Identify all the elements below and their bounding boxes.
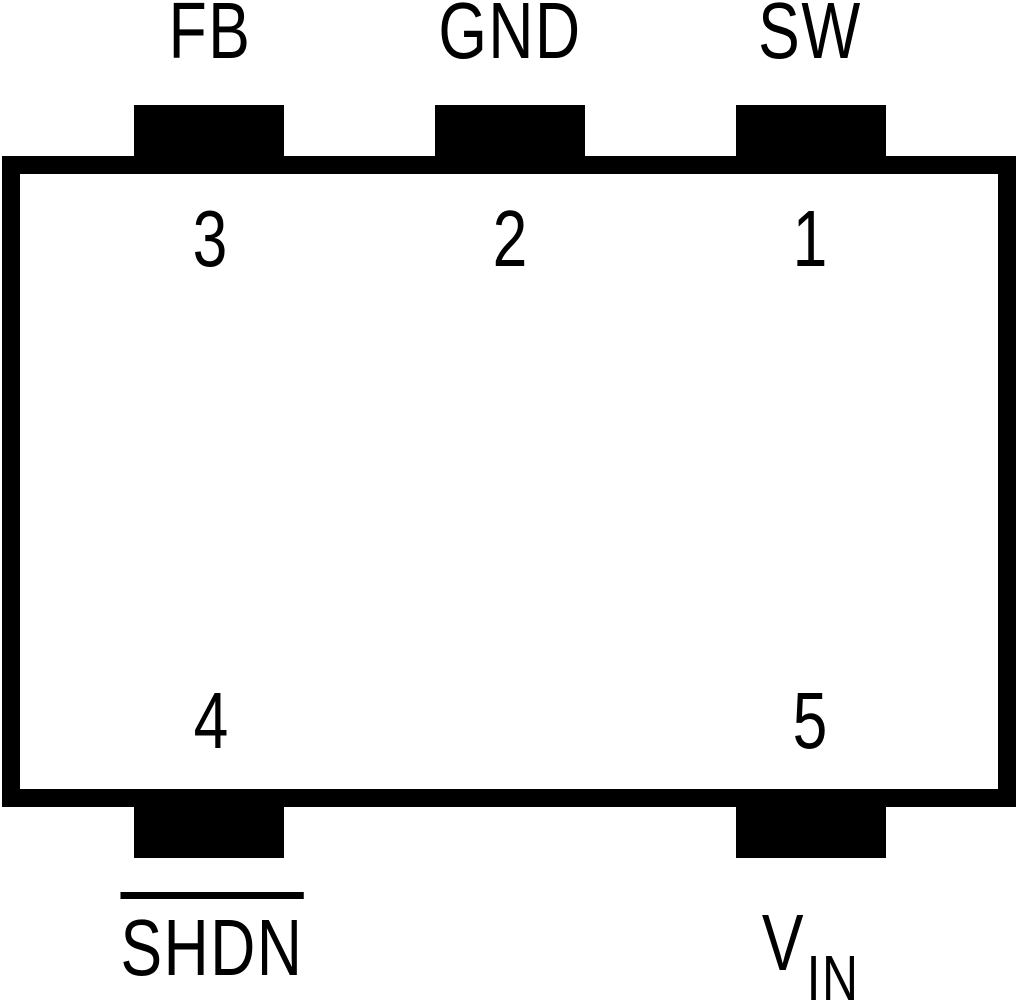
pin-label-gnd: GND — [438, 0, 581, 71]
pin-number-1: 1 — [793, 199, 828, 279]
pin-number-5: 5 — [793, 681, 828, 761]
vin-main-text: V — [762, 898, 805, 987]
pin-pad-5 — [736, 807, 886, 858]
vin-subscript-text: IN — [807, 946, 860, 1000]
pin-pad-1 — [736, 105, 886, 156]
ic-pinout-diagram: FB GND SW SHDN VIN 3 2 1 4 5 — [0, 0, 1020, 1000]
pin-pad-2 — [435, 105, 585, 156]
pin-number-2: 2 — [493, 199, 528, 279]
pin-number-4: 4 — [194, 681, 229, 761]
pin-pad-3 — [134, 105, 284, 156]
pin-number-3: 3 — [193, 199, 228, 279]
pin-label-vin: VIN — [762, 903, 858, 983]
pin-label-sw: SW — [758, 0, 862, 71]
pin-pad-4 — [134, 807, 284, 858]
pin-label-shdn-overline: SHDN — [120, 892, 303, 988]
pin-label-fb: FB — [169, 0, 252, 71]
